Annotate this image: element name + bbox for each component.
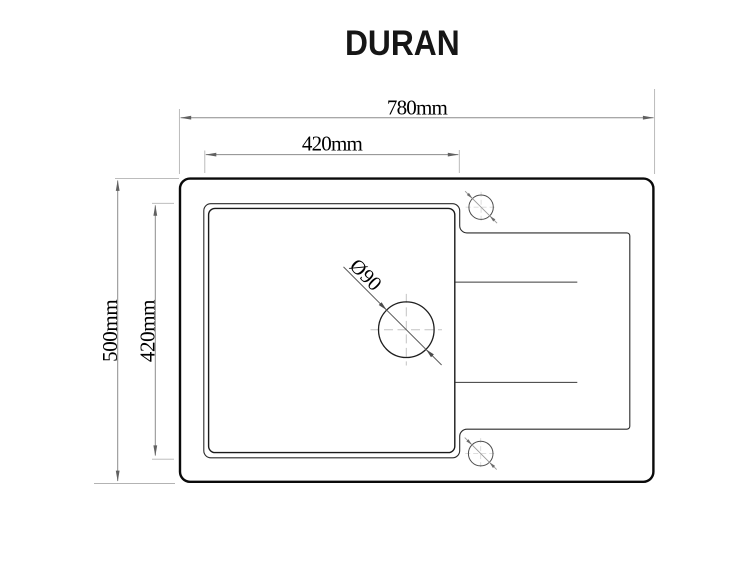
svg-text:780mm: 780mm: [387, 96, 448, 120]
svg-text:420mm: 420mm: [135, 300, 159, 362]
svg-text:Ø90: Ø90: [345, 255, 386, 296]
svg-text:420mm: 420mm: [302, 131, 363, 155]
svg-text:DURAN: DURAN: [345, 25, 460, 64]
svg-text:500mm: 500mm: [98, 300, 122, 362]
